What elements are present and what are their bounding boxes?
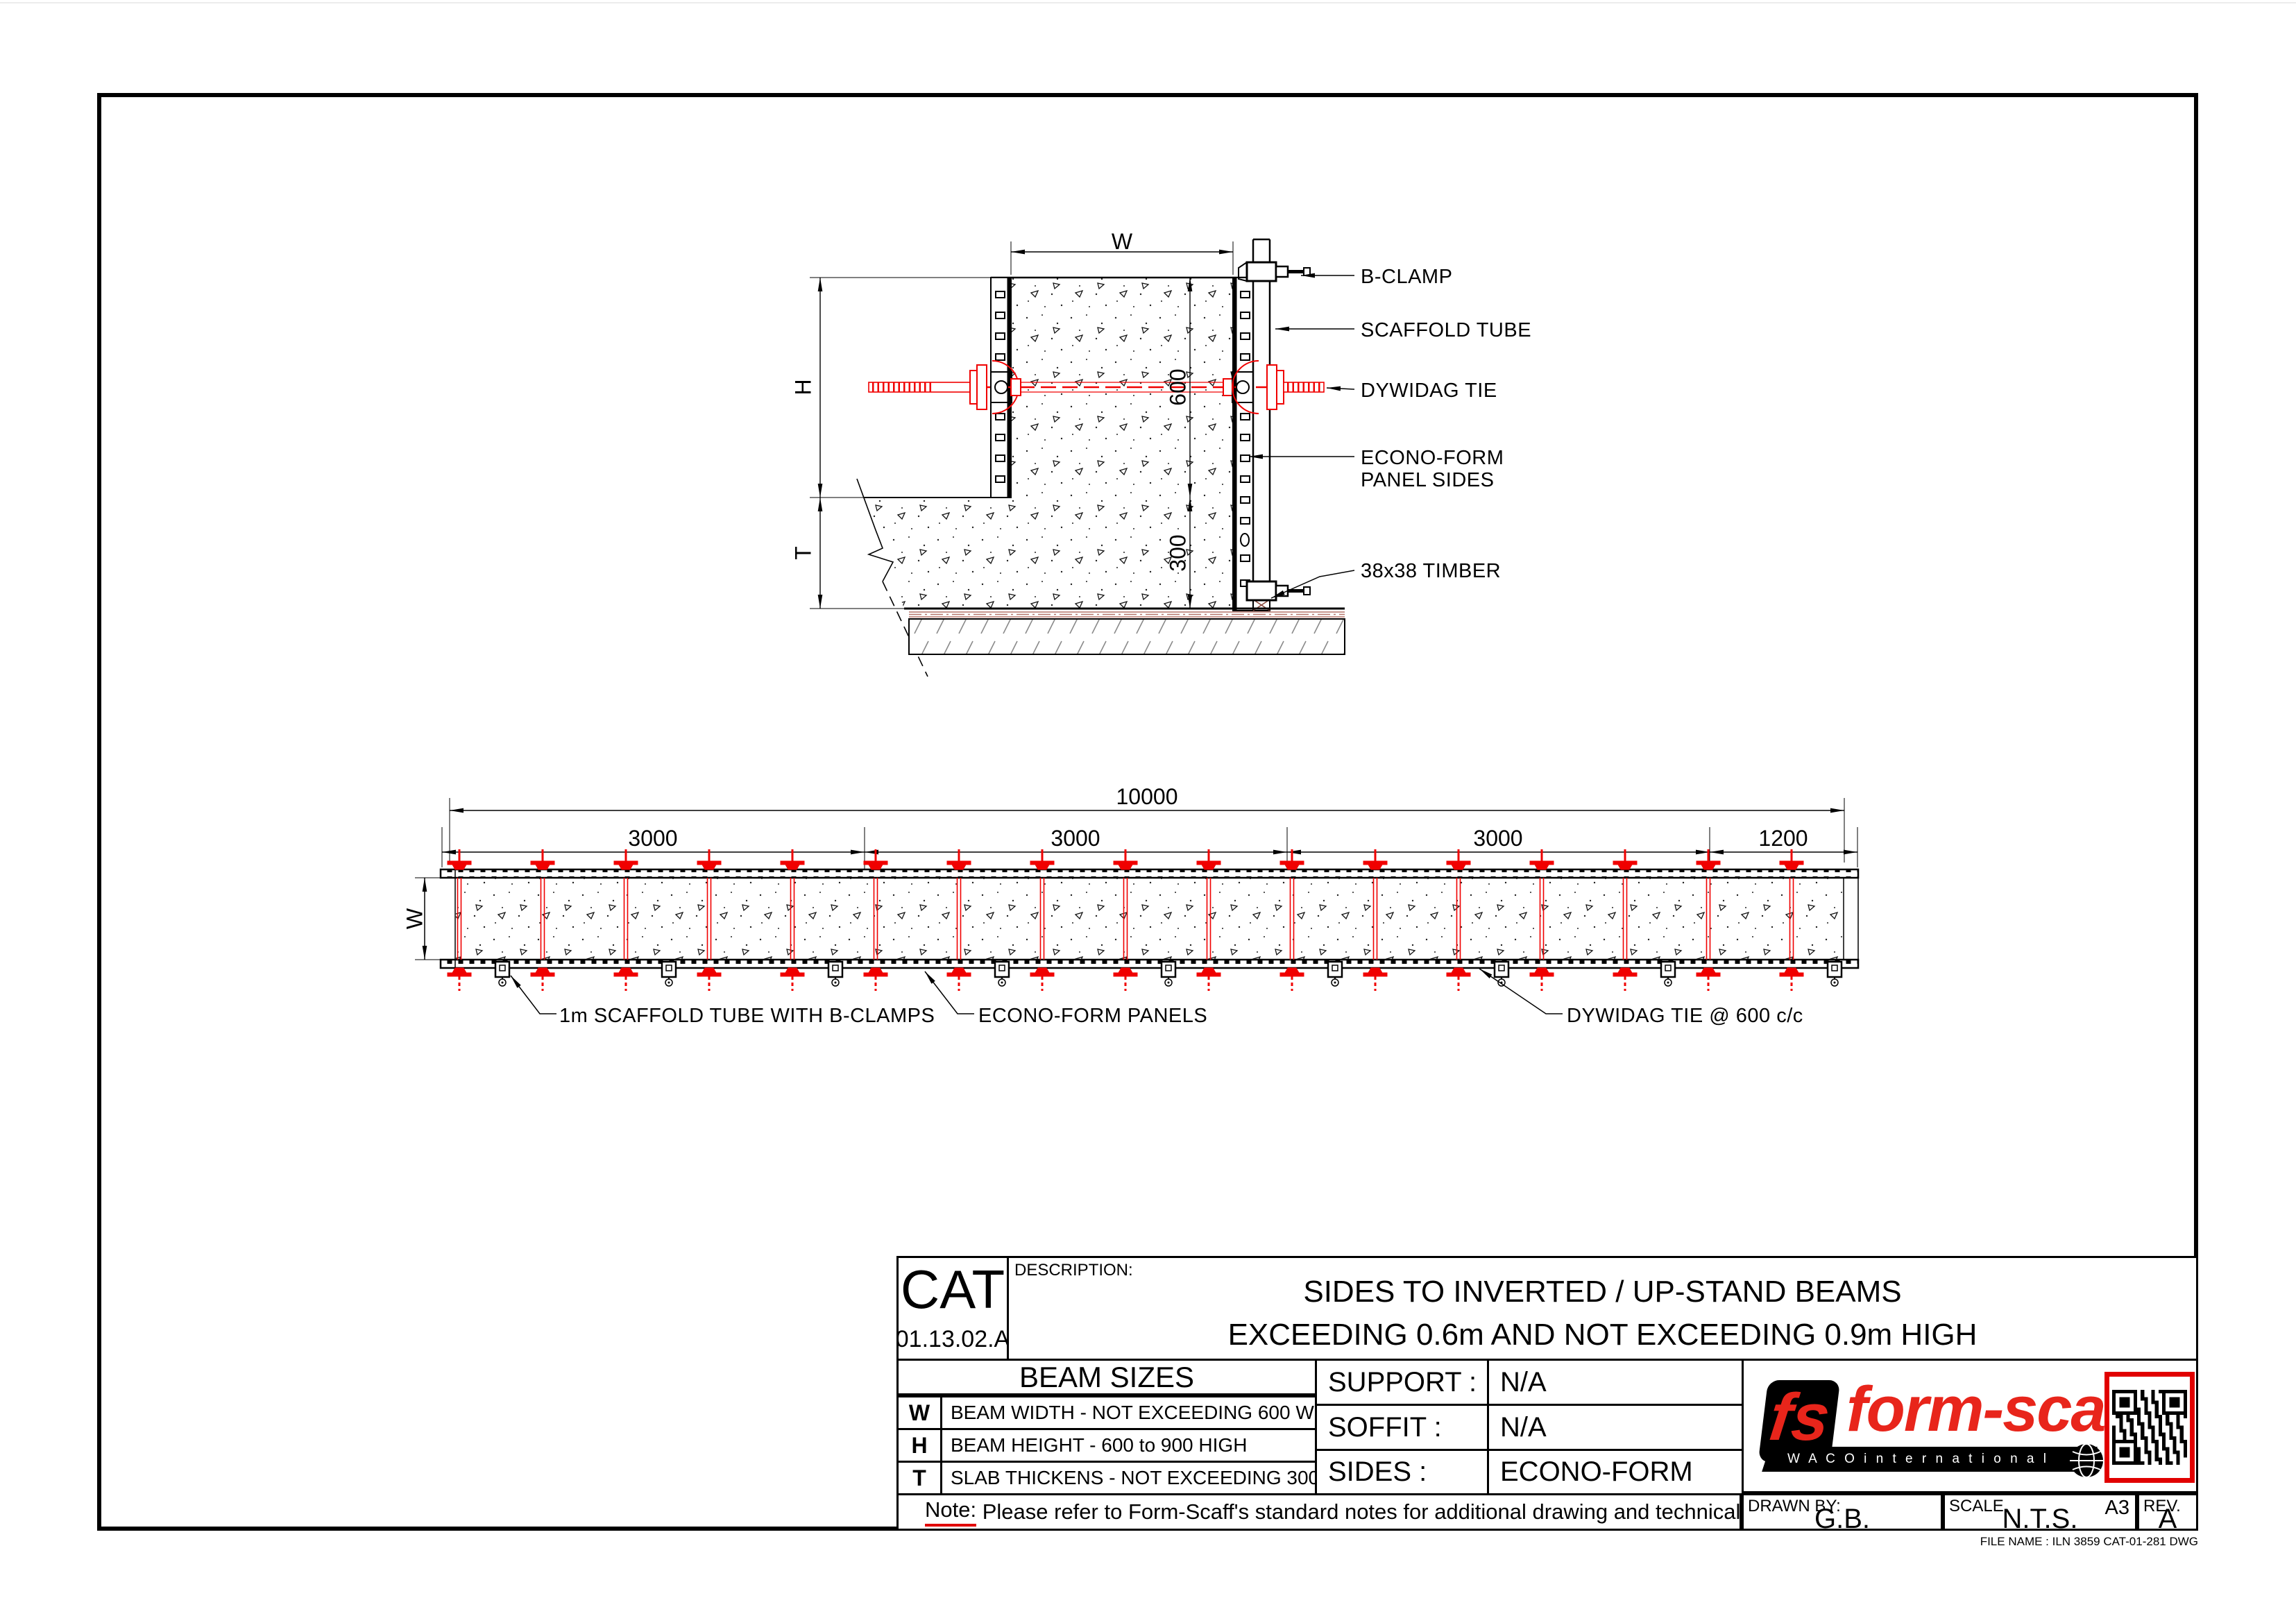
beam-size-desc-t: SLAB THICKENS - NOT EXCEEDING 300 THICK [940, 1461, 1317, 1495]
soffit-label: SOFFIT : [1315, 1404, 1489, 1451]
dim-300: 300 [1166, 534, 1191, 571]
dim-3000-1: 3000 [628, 826, 677, 851]
beam-size-key-h: H [896, 1428, 942, 1463]
label-panel-sides-1: ECONO-FORM [1361, 447, 1504, 470]
description-line1: SIDES TO INVERTED / UP-STAND BEAMS [1009, 1271, 2196, 1314]
scale-cell: SCALE A3 N.T.S. [1943, 1493, 2137, 1531]
dim-600: 600 [1166, 368, 1191, 405]
b-clamp-top [1239, 262, 1310, 281]
beam-size-key-w: W [896, 1395, 942, 1430]
description-line2: EXCEEDING 0.6m AND NOT EXCEEDING 0.9m HI… [1009, 1314, 2196, 1357]
qr-code [2104, 1372, 2195, 1483]
dim-w-plan: W [402, 908, 428, 929]
support-label: SUPPORT : [1315, 1359, 1489, 1406]
note-text: Please refer to Form-Scaff's standard no… [976, 1499, 1805, 1524]
page: { "colors": {"cad_red": "#f00000", "logo… [0, 0, 2296, 1623]
plan-rail-bottom [441, 960, 1858, 968]
plan-concrete [456, 878, 1844, 960]
dim-w-cross: W [1112, 229, 1132, 255]
cross-section-view [810, 239, 1354, 677]
soffit-value: N/A [1487, 1404, 1744, 1451]
label-plan-scaffold-tube: 1m SCAFFOLD TUBE WITH B-CLAMPS [559, 1005, 935, 1028]
logo-cell: fs form-scaff W A C O i n t e r n a t i … [1742, 1359, 2198, 1493]
dim-3000-3: 3000 [1473, 826, 1522, 851]
beam-size-desc-w: BEAM WIDTH - NOT EXCEEDING 600 WIDE [940, 1395, 1317, 1430]
b-clamp-bottom [1247, 581, 1310, 600]
dim-t: T [791, 546, 817, 560]
drawn-by-cell: DRAWN BY: G.B. [1742, 1493, 1943, 1531]
base-layers [904, 609, 1345, 654]
dim-3000-2: 3000 [1051, 826, 1100, 851]
cat-label: CAT [901, 1262, 1005, 1316]
label-dywidag-tie: DYWIDAG TIE [1361, 380, 1497, 402]
form-scaff-wordmark: form-scaff [1846, 1373, 2143, 1446]
support-value: N/A [1487, 1359, 1744, 1406]
description-cell: DESCRIPTION: SIDES TO INVERTED / UP-STAN… [1007, 1256, 2198, 1361]
cat-cell: CAT 01.13.02.A [896, 1256, 1009, 1361]
beam-size-key-t: T [896, 1461, 942, 1495]
sides-label: SIDES : [1315, 1449, 1489, 1495]
scale-value: N.T.S. [1945, 1504, 2135, 1535]
label-plan-panels: ECONO-FORM PANELS [978, 1005, 1207, 1028]
plan-rail-top [441, 869, 1858, 878]
dim-h: H [791, 379, 817, 395]
rev-value: A [2139, 1504, 2196, 1535]
waco-banner: W A C O i n t e r n a t i o n a l [1762, 1447, 2098, 1472]
drawn-by-value: G.B. [1744, 1504, 1941, 1535]
cs-leaders [1249, 275, 1354, 598]
label-b-clamp: B-CLAMP [1361, 266, 1452, 289]
scaffold-tube [1253, 239, 1270, 600]
cat-number: 01.13.02.A [896, 1326, 1010, 1353]
note-label: Note: [925, 1497, 976, 1527]
globe-icon [2068, 1443, 2104, 1479]
beam-sizes-header: BEAM SIZES [896, 1359, 1317, 1395]
label-scaffold-tube: SCAFFOLD TUBE [1361, 319, 1531, 342]
econo-form-panel-right [1233, 278, 1253, 611]
dim-1200: 1200 [1758, 826, 1808, 851]
sides-value: ECONO-FORM [1487, 1449, 1744, 1495]
file-name: FILE NAME : ILN 3859 CAT-01-281 DWG [1980, 1535, 2198, 1549]
note-row: Note: Please refer to Form-Scaff's stand… [896, 1493, 1742, 1531]
beam-size-desc-h: BEAM HEIGHT - 600 to 900 HIGH [940, 1428, 1317, 1463]
label-timber: 38x38 TIMBER [1361, 560, 1501, 583]
rev-cell: REV. A [2137, 1493, 2198, 1531]
label-panel-sides-2: PANEL SIDES [1361, 469, 1494, 492]
label-plan-tie-spacing: DYWIDAG TIE @ 600 c/c [1567, 1005, 1803, 1028]
dim-10000: 10000 [1116, 784, 1178, 810]
